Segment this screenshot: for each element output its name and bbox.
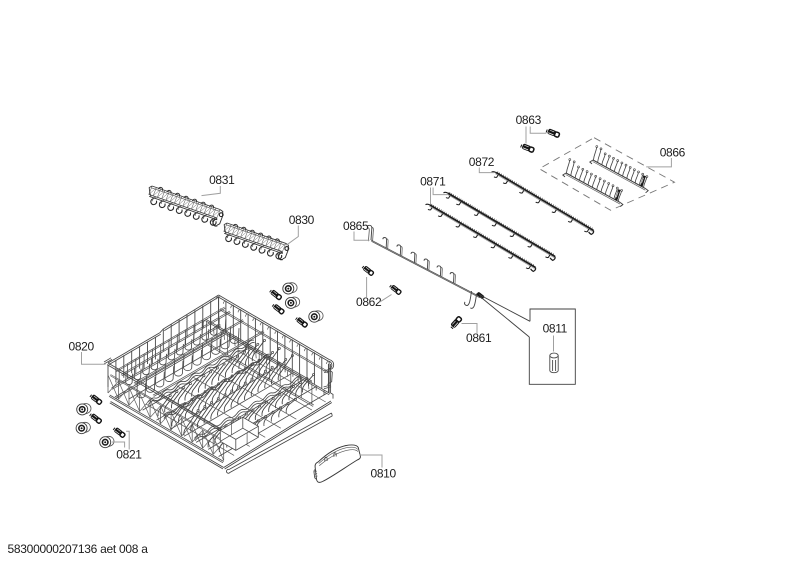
svg-text:0862: 0862 bbox=[356, 295, 382, 309]
svg-text:0863: 0863 bbox=[516, 113, 542, 127]
svg-text:0811: 0811 bbox=[543, 322, 568, 336]
svg-text:0820: 0820 bbox=[69, 340, 95, 354]
svg-text:0865: 0865 bbox=[343, 219, 369, 233]
svg-text:0872: 0872 bbox=[469, 155, 495, 169]
svg-text:0831: 0831 bbox=[209, 173, 235, 187]
svg-text:58300000207136 aet 008 a: 58300000207136 aet 008 a bbox=[8, 542, 149, 556]
svg-text:0866: 0866 bbox=[660, 146, 686, 160]
svg-text:0861: 0861 bbox=[466, 331, 492, 345]
svg-text:0871: 0871 bbox=[420, 175, 446, 189]
svg-text:0810: 0810 bbox=[371, 467, 397, 481]
svg-text:0830: 0830 bbox=[289, 213, 315, 227]
svg-text:0821: 0821 bbox=[116, 448, 142, 462]
